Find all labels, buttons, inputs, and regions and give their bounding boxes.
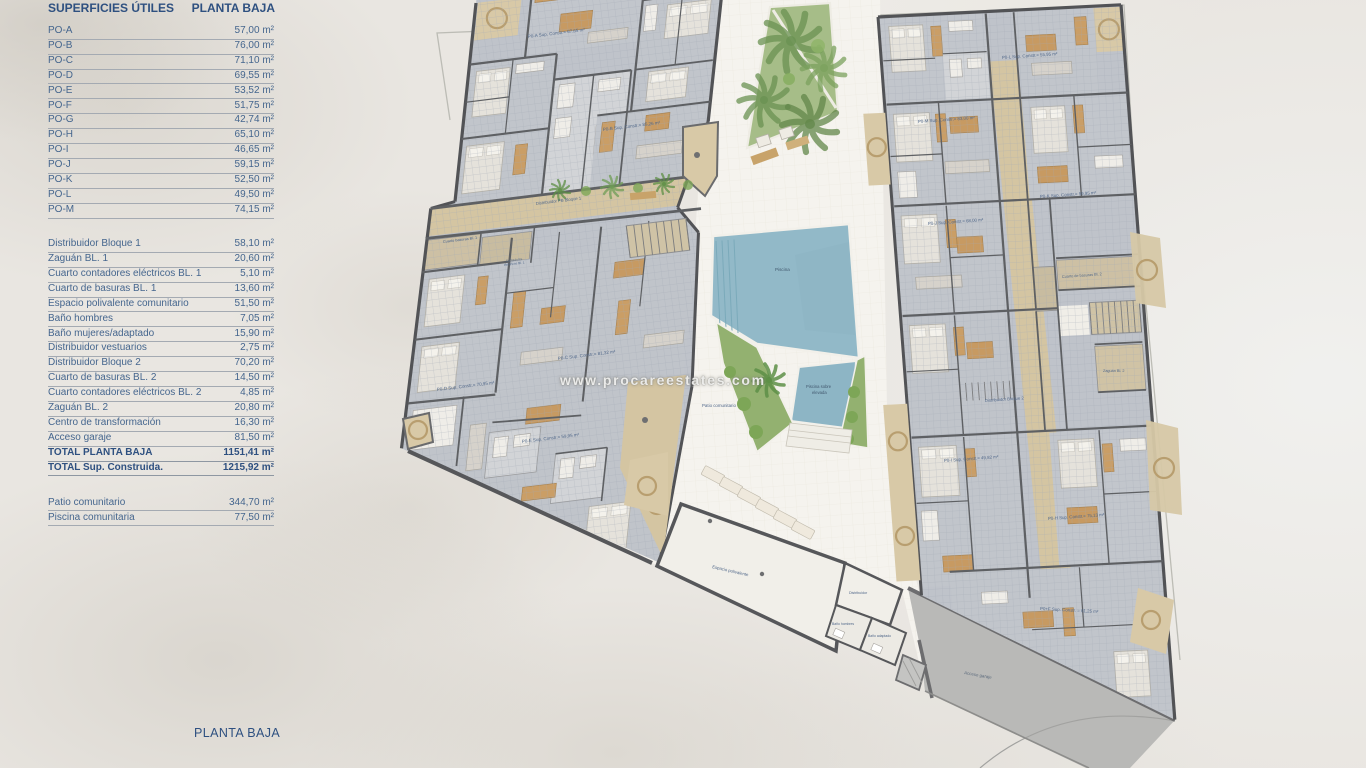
svg-text:Zaguán Bl. 2: Zaguán Bl. 2 bbox=[1103, 369, 1125, 373]
svg-text:Piscina sobre: Piscina sobre bbox=[806, 384, 832, 389]
svg-text:Piscina: Piscina bbox=[775, 267, 790, 272]
svg-text:Baño hombres: Baño hombres bbox=[832, 622, 854, 626]
svg-text:elevada: elevada bbox=[812, 390, 827, 395]
svg-text:Distribuidor: Distribuidor bbox=[849, 591, 868, 595]
svg-text:Baño adaptado: Baño adaptado bbox=[868, 634, 891, 638]
svg-text:Patio comunitario: Patio comunitario bbox=[702, 403, 736, 408]
